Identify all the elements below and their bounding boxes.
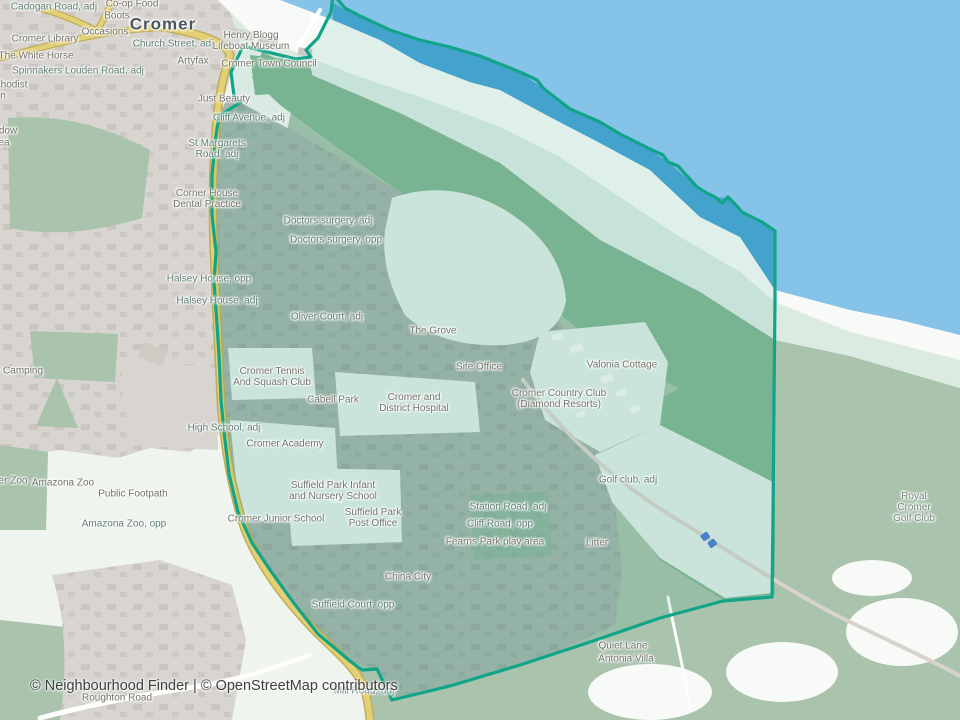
osm-contributors-link[interactable]: OpenStreetMap contributors (216, 678, 398, 694)
attribution-separator: | © (189, 678, 216, 694)
attribution: © Neighbourhood Finder | © OpenStreetMap… (30, 678, 398, 694)
urban-area-zoo (120, 358, 218, 450)
neighbourhood-finder-link[interactable]: Neighbourhood Finder (45, 678, 189, 694)
copyright-symbol: © (30, 678, 45, 694)
map-tiles (0, 0, 960, 720)
green-patch-camping (30, 331, 118, 382)
pale-patch-se4 (832, 560, 912, 596)
pale-patch-se2 (726, 642, 838, 702)
pale-patch-se3 (846, 598, 958, 666)
pale-patch-se1 (588, 664, 712, 720)
map-canvas[interactable]: CromerCo-op FoodCadogan Road, adjBootsOc… (0, 0, 960, 720)
